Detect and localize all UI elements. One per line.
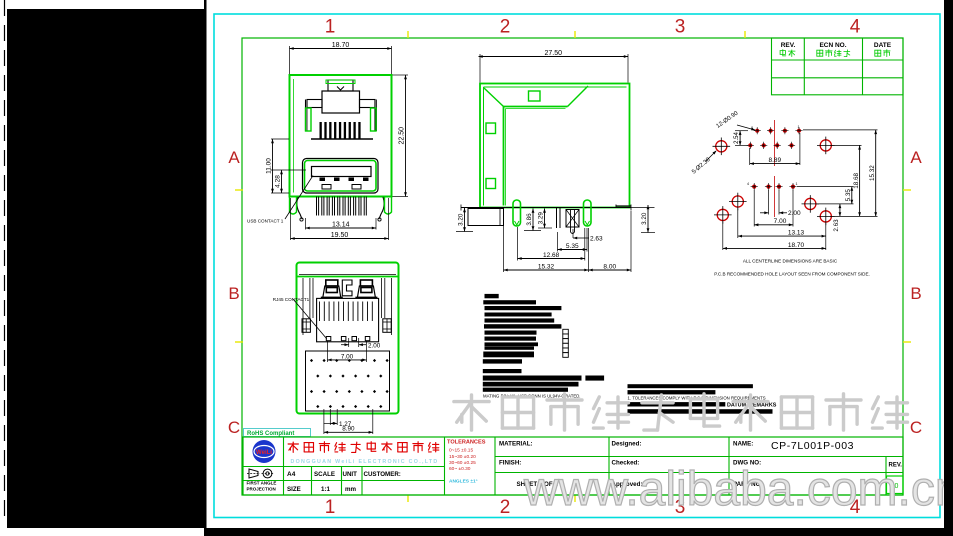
- svg-text:SCALE: SCALE: [314, 471, 335, 478]
- svg-text:1: 1: [798, 125, 800, 129]
- svg-text:A: A: [228, 148, 240, 167]
- svg-text:4: 4: [747, 182, 749, 186]
- svg-text:3.86: 3.86: [526, 213, 533, 226]
- svg-text:30~60 ±0.25: 30~60 ±0.25: [449, 460, 476, 466]
- svg-text:mm: mm: [345, 486, 357, 493]
- svg-text:8.89: 8.89: [768, 157, 781, 164]
- svg-text:7.00: 7.00: [774, 218, 787, 225]
- svg-text:13.14: 13.14: [332, 221, 350, 228]
- svg-text:2.63: 2.63: [590, 236, 603, 243]
- svg-text:4: 4: [850, 17, 861, 38]
- svg-text:5.35: 5.35: [845, 189, 852, 202]
- svg-text:2.00: 2.00: [788, 210, 801, 217]
- svg-text:8.90: 8.90: [342, 426, 355, 433]
- svg-text:19.50: 19.50: [331, 232, 349, 239]
- svg-text:1: 1: [325, 17, 336, 38]
- svg-text:22.50: 22.50: [399, 127, 406, 145]
- svg-text:8.00: 8.00: [603, 263, 616, 270]
- svg-text:0~15 ±0.15: 0~15 ±0.15: [449, 448, 473, 454]
- svg-text:1: 1: [325, 497, 336, 518]
- svg-text:60~ ±0.30: 60~ ±0.30: [449, 466, 471, 472]
- svg-text:TOLERANCES: TOLERANCES: [447, 440, 486, 446]
- svg-text:FIRST ANGLE: FIRST ANGLE: [247, 481, 277, 486]
- svg-text:CP-7L001P-003: CP-7L001P-003: [771, 440, 854, 452]
- svg-text:WeiLi: WeiLi: [256, 450, 272, 456]
- svg-text:RoHS Compliant: RoHS Compliant: [247, 431, 294, 437]
- svg-text:2: 2: [500, 17, 511, 38]
- svg-text:www.alibaba.com.cn: www.alibaba.com.cn: [523, 463, 953, 516]
- svg-text:UNIT: UNIT: [343, 471, 358, 478]
- svg-text:3: 3: [675, 17, 686, 38]
- svg-text:MATERIAL:: MATERIAL:: [499, 441, 533, 448]
- svg-text:A4: A4: [287, 471, 296, 478]
- svg-text:2.63: 2.63: [833, 219, 840, 232]
- svg-text:15~30 ±0.20: 15~30 ±0.20: [449, 454, 476, 460]
- svg-text:27.50: 27.50: [544, 50, 562, 57]
- svg-text:RJ45 CONTACT1: RJ45 CONTACT1: [273, 297, 310, 302]
- svg-text:7.00: 7.00: [341, 353, 354, 360]
- svg-text:REV.: REV.: [781, 42, 796, 49]
- svg-text:DATE: DATE: [874, 42, 892, 49]
- svg-text:15.32: 15.32: [538, 263, 555, 270]
- svg-text:ECN NO.: ECN NO.: [819, 42, 846, 49]
- svg-text:ANGLES ±1°: ANGLES ±1°: [449, 479, 478, 485]
- svg-text:SIZE: SIZE: [287, 486, 301, 493]
- svg-text:3.29: 3.29: [538, 212, 545, 225]
- svg-text:B: B: [228, 284, 239, 303]
- svg-text:4.28: 4.28: [275, 175, 282, 188]
- svg-text:1:1: 1:1: [321, 486, 331, 493]
- svg-text:2.54: 2.54: [734, 132, 740, 144]
- svg-text:Designed:: Designed:: [612, 441, 642, 448]
- svg-text:DONGGUAN WeiLi ELECTRONIC CO.,: DONGGUAN WeiLi ELECTRONIC CO.,LTD: [291, 459, 439, 465]
- svg-text:ALL CENTERLINE DIMENSIONS ARE: ALL CENTERLINE DIMENSIONS ARE BASIC: [743, 259, 838, 264]
- svg-text:2: 2: [500, 497, 511, 518]
- svg-text:18.70: 18.70: [332, 42, 350, 49]
- svg-text:C: C: [228, 418, 240, 437]
- svg-text:13.13: 13.13: [788, 230, 805, 237]
- svg-text:FINISH:: FINISH:: [499, 460, 521, 467]
- svg-text:11.00: 11.00: [266, 158, 273, 174]
- svg-text:15.32: 15.32: [869, 165, 876, 181]
- svg-text:USB CONTACT 1: USB CONTACT 1: [247, 219, 284, 224]
- svg-text:5.35: 5.35: [566, 243, 579, 250]
- svg-text:2.00: 2.00: [368, 343, 381, 350]
- svg-text:PROJECTION: PROJECTION: [247, 487, 276, 492]
- svg-text:A: A: [910, 148, 922, 167]
- svg-text:18.70: 18.70: [788, 242, 805, 249]
- svg-text:3.20: 3.20: [641, 212, 648, 225]
- svg-text:CUSTOMER:: CUSTOMER:: [364, 471, 401, 478]
- svg-text:18.68: 18.68: [853, 173, 860, 189]
- svg-text:12.68: 12.68: [543, 252, 560, 259]
- svg-text:3.20: 3.20: [458, 213, 465, 226]
- svg-text:NAME:: NAME:: [733, 441, 753, 448]
- svg-text:C: C: [910, 418, 922, 437]
- svg-text:P.C.B RECOMMENDED HOLE LAYOUT: P.C.B RECOMMENDED HOLE LAYOUT SEEN FROM …: [714, 272, 870, 277]
- svg-text:1: 1: [796, 182, 798, 186]
- svg-text:B: B: [910, 284, 921, 303]
